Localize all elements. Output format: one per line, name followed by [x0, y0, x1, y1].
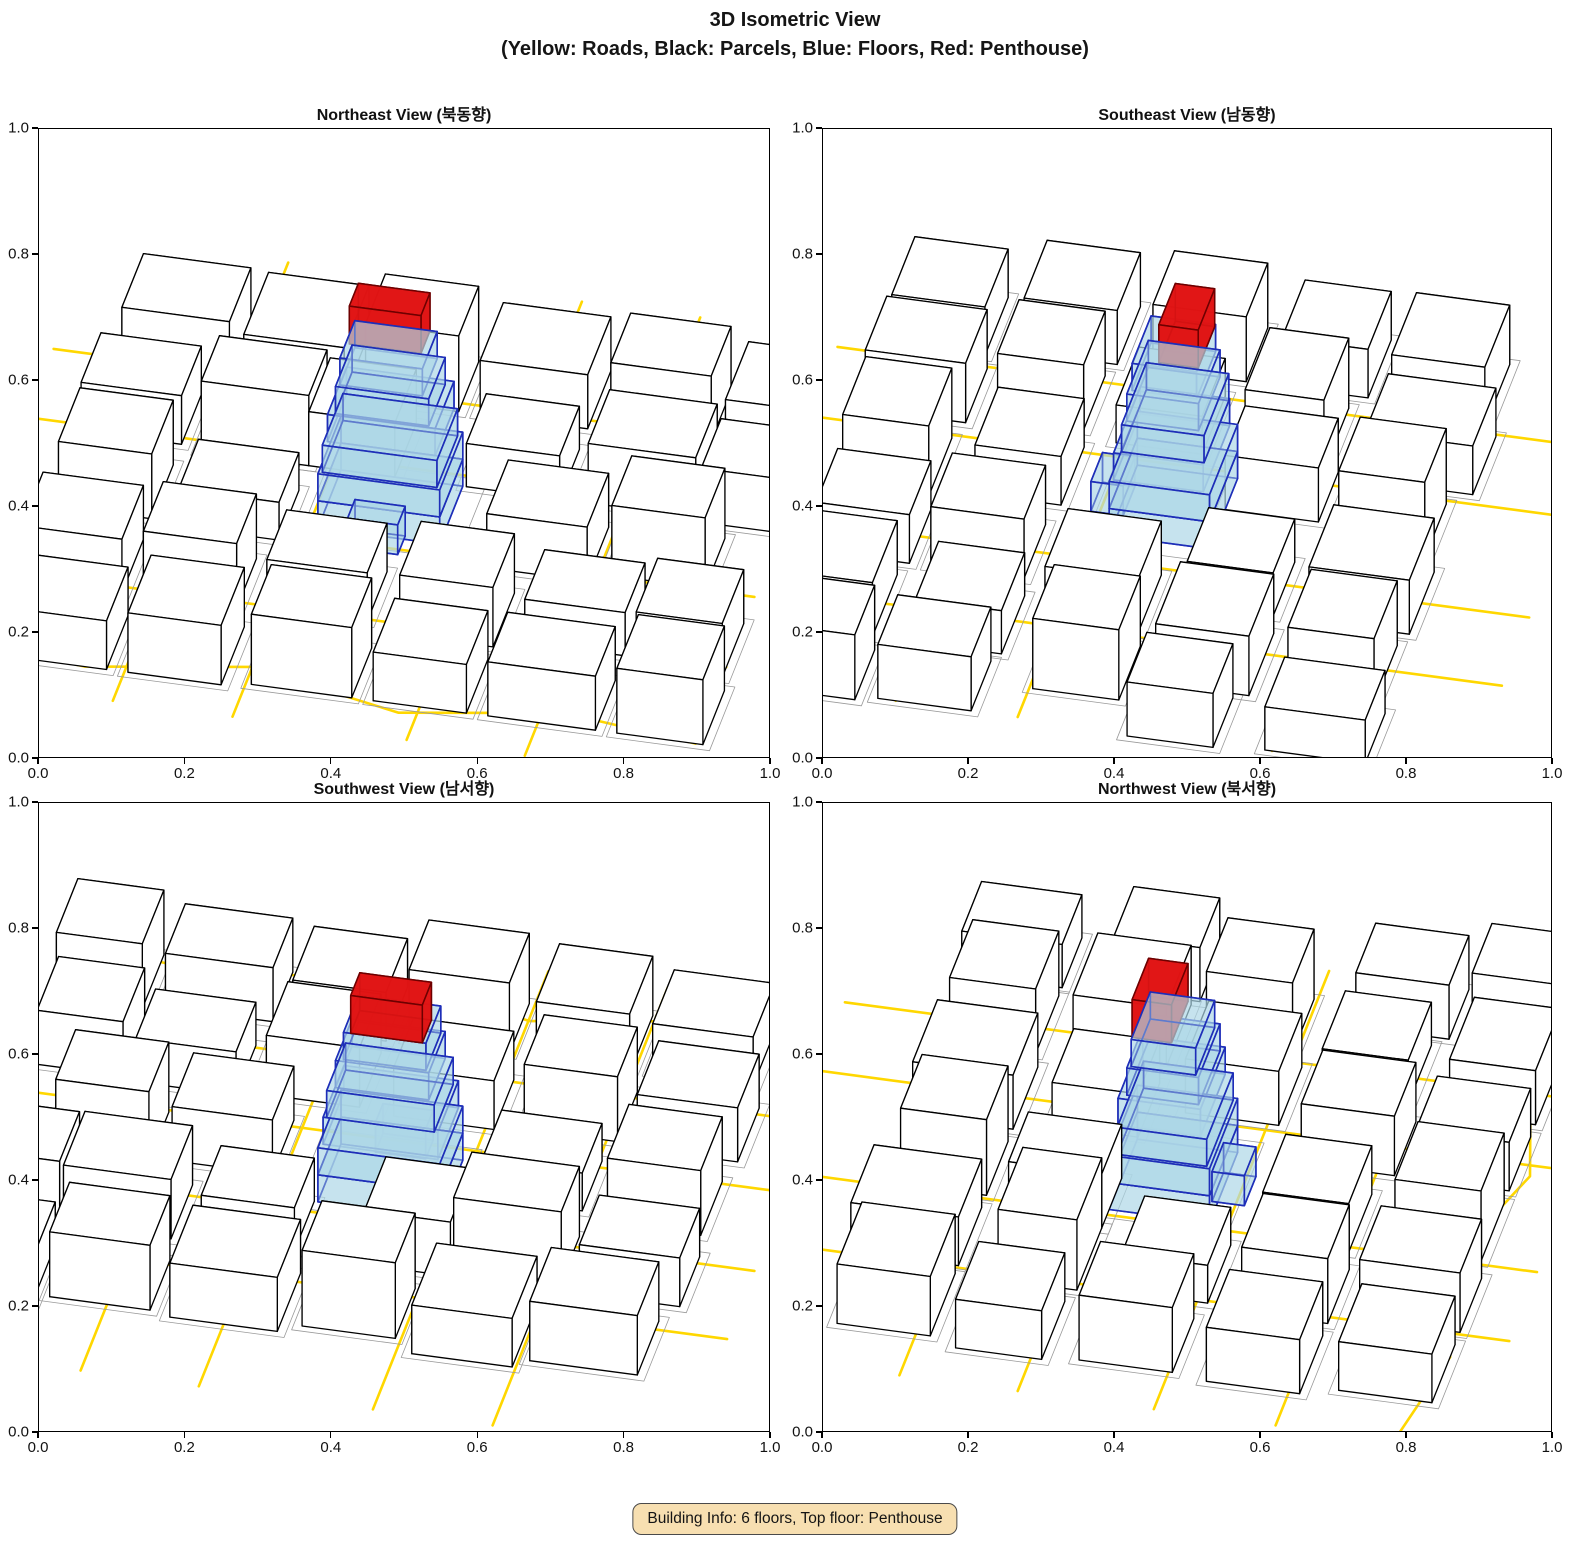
subplot-southwest: Southwest View (남서향) 0.00.20.40.60.81.00… [38, 802, 770, 1432]
x-tick-mark [477, 758, 478, 764]
y-tick-mark [816, 505, 822, 506]
plot-area [38, 802, 770, 1432]
plot-area [822, 128, 1552, 758]
x-tick-label: 0.2 [174, 1439, 195, 1456]
y-tick-mark [32, 1053, 38, 1054]
y-tick-mark [816, 253, 822, 254]
x-tick-label: 0.6 [467, 1439, 488, 1456]
x-tick-mark [477, 1432, 478, 1438]
x-tick-label: 0.8 [613, 1439, 634, 1456]
x-tick-label: 0.0 [28, 1439, 49, 1456]
x-tick-label: 0.2 [958, 1439, 979, 1456]
x-tick-label: 0.4 [1104, 1439, 1125, 1456]
figure: 3D Isometric View (Yellow: Roads, Black:… [0, 0, 1590, 1560]
y-tick-mark [816, 927, 822, 928]
y-tick-label: 1.0 [8, 794, 29, 811]
x-tick-mark [769, 1432, 770, 1438]
x-tick-mark [1259, 758, 1260, 764]
x-tick-label: 1.0 [760, 1439, 781, 1456]
y-tick-label: 0.0 [792, 750, 813, 767]
plot-area [38, 128, 770, 758]
x-tick-label: 0.0 [812, 1439, 833, 1456]
y-tick-label: 0.8 [8, 920, 29, 937]
y-tick-mark [816, 801, 822, 802]
y-tick-mark [32, 379, 38, 380]
figure-title: 3D Isometric View (Yellow: Roads, Black:… [0, 6, 1590, 64]
y-tick-label: 0.8 [792, 920, 813, 937]
subplot-title: Northeast View (북동향) [38, 101, 770, 125]
building-info-badge: Building Info: 6 floors, Top floor: Pent… [632, 1503, 957, 1535]
subplot-northwest: Northwest View (북서향) 0.00.20.40.60.81.00… [822, 802, 1552, 1432]
x-tick-label: 0.8 [1396, 1439, 1417, 1456]
scene-3d [823, 129, 1552, 758]
x-tick-mark [967, 1432, 968, 1438]
y-tick-mark [32, 505, 38, 506]
y-tick-label: 0.2 [8, 624, 29, 641]
y-tick-label: 0.4 [8, 1172, 29, 1189]
subplot-northeast: Northeast View (북동향) 0.00.20.40.60.81.00… [38, 128, 770, 758]
y-tick-mark [816, 1179, 822, 1180]
y-tick-mark [32, 631, 38, 632]
x-tick-mark [967, 758, 968, 764]
y-tick-label: 0.4 [8, 498, 29, 515]
y-tick-label: 1.0 [8, 120, 29, 137]
x-tick-mark [330, 1432, 331, 1438]
y-tick-label: 0.4 [792, 498, 813, 515]
subplot-title: Southeast View (남동향) [822, 101, 1552, 125]
x-tick-mark [769, 758, 770, 764]
y-tick-label: 0.6 [8, 372, 29, 389]
y-tick-mark [816, 1053, 822, 1054]
y-tick-label: 0.2 [792, 624, 813, 641]
y-tick-label: 0.0 [792, 1424, 813, 1441]
x-tick-mark [1259, 1432, 1260, 1438]
x-tick-mark [1405, 1432, 1406, 1438]
scene-3d [39, 803, 770, 1432]
y-tick-label: 0.6 [792, 372, 813, 389]
x-tick-mark [184, 758, 185, 764]
y-tick-label: 1.0 [792, 120, 813, 137]
subplot-title: Southwest View (남서향) [38, 775, 770, 799]
x-tick-mark [821, 758, 822, 764]
y-tick-label: 0.2 [792, 1298, 813, 1315]
y-tick-label: 0.8 [8, 246, 29, 263]
y-tick-mark [32, 127, 38, 128]
x-tick-label: 0.6 [1250, 1439, 1271, 1456]
y-tick-label: 0.4 [792, 1172, 813, 1189]
subplot-title: Northwest View (북서향) [822, 775, 1552, 799]
scene-3d [39, 129, 770, 758]
y-tick-mark [32, 927, 38, 928]
y-tick-mark [816, 127, 822, 128]
y-tick-label: 0.0 [8, 1424, 29, 1441]
y-tick-mark [32, 1305, 38, 1306]
x-tick-mark [1113, 758, 1114, 764]
y-tick-label: 0.6 [792, 1046, 813, 1063]
x-tick-label: 0.4 [320, 1439, 341, 1456]
y-tick-mark [816, 631, 822, 632]
plot-area [822, 802, 1552, 1432]
y-tick-label: 0.6 [8, 1046, 29, 1063]
x-tick-mark [1405, 758, 1406, 764]
x-tick-mark [330, 758, 331, 764]
x-tick-mark [184, 1432, 185, 1438]
y-tick-label: 0.2 [8, 1298, 29, 1315]
figure-title-line1: 3D Isometric View [0, 6, 1590, 35]
x-tick-mark [1551, 1432, 1552, 1438]
y-tick-label: 0.8 [792, 246, 813, 263]
y-tick-mark [816, 379, 822, 380]
y-tick-mark [32, 253, 38, 254]
subplot-southeast: Southeast View (남동향) 0.00.20.40.60.81.00… [822, 128, 1552, 758]
x-tick-label: 1.0 [1542, 1439, 1563, 1456]
scene-3d [823, 803, 1552, 1432]
x-tick-mark [37, 1432, 38, 1438]
x-tick-mark [37, 758, 38, 764]
x-tick-mark [821, 1432, 822, 1438]
y-tick-label: 0.0 [8, 750, 29, 767]
y-tick-mark [32, 801, 38, 802]
figure-title-line2: (Yellow: Roads, Black: Parcels, Blue: Fl… [0, 35, 1590, 64]
x-tick-mark [1551, 758, 1552, 764]
x-tick-mark [623, 1432, 624, 1438]
y-tick-mark [816, 1305, 822, 1306]
x-tick-mark [623, 758, 624, 764]
y-tick-mark [32, 1179, 38, 1180]
x-tick-mark [1113, 1432, 1114, 1438]
y-tick-label: 1.0 [792, 794, 813, 811]
